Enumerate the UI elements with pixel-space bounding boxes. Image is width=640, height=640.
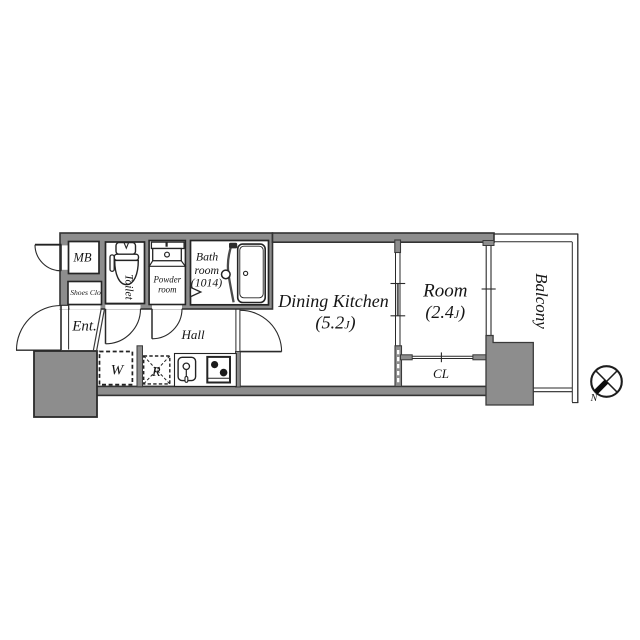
svg-text:(5.2J): (5.2J): [315, 313, 355, 334]
svg-text:Bath: Bath: [196, 250, 218, 264]
svg-text:Toilet: Toilet: [123, 274, 135, 300]
svg-text:room: room: [158, 285, 177, 295]
svg-text:W: W: [111, 363, 125, 379]
svg-text:CL: CL: [433, 366, 449, 381]
svg-text:Balcony: Balcony: [532, 273, 551, 329]
svg-text:Powder: Powder: [152, 275, 181, 285]
svg-text:Ent.: Ent.: [71, 319, 97, 335]
svg-text:Dining Kitchen: Dining Kitchen: [277, 291, 389, 311]
svg-text:Room: Room: [422, 281, 467, 302]
svg-text:(2.4J): (2.4J): [425, 302, 465, 323]
svg-text:Hall: Hall: [180, 327, 205, 342]
svg-text:(1014): (1014): [191, 275, 223, 289]
svg-text:R: R: [151, 365, 161, 380]
svg-text:N: N: [590, 393, 599, 404]
svg-text:Shoes Clo: Shoes Clo: [70, 288, 101, 297]
svg-text:MB: MB: [72, 250, 91, 264]
